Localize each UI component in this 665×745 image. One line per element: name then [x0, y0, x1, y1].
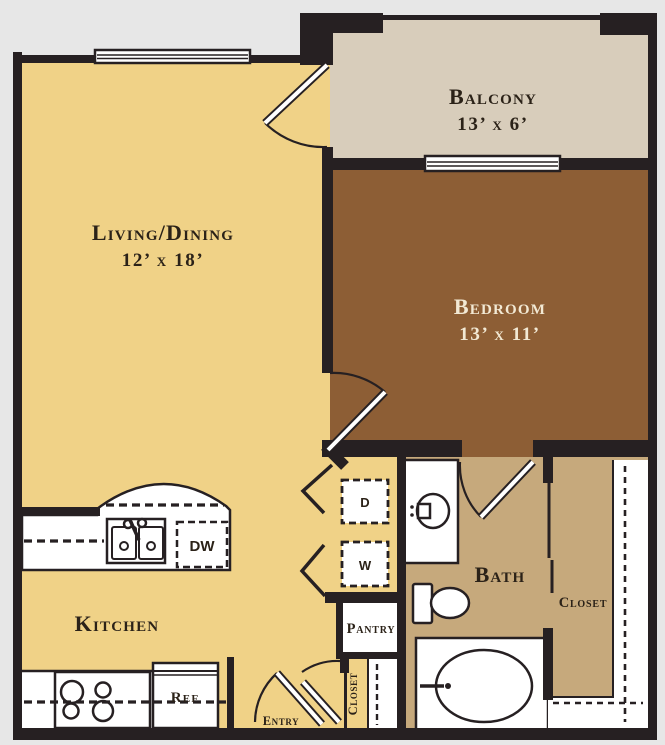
floor-plan-svg: Living/Dining 12’ x 18’ Balcony 13’ x 6’…: [0, 0, 665, 745]
entry-closet-shelf: [369, 658, 397, 728]
wall-wd-bottom: [325, 592, 406, 603]
stove: [55, 672, 150, 728]
living-window: [95, 50, 250, 63]
wall-top-right: [248, 55, 303, 63]
wall-right: [648, 13, 657, 740]
bedroom-window: [425, 156, 560, 171]
bedroom-dims: 13’ x 11’: [459, 324, 540, 345]
walk-in-closet-label: Closet: [559, 595, 608, 611]
pantry-label: Pantry: [347, 621, 396, 637]
washer-label: W: [359, 558, 372, 573]
living-room-floor: [17, 55, 333, 737]
balcony-label: Balcony: [449, 84, 537, 109]
wall-bedroom-bottom-right: [533, 440, 648, 457]
dishwasher-label: DW: [190, 538, 216, 555]
faucet-handle-right: [138, 519, 146, 527]
balcony-dims: 13’ x 6’: [457, 114, 528, 135]
living-room-dims: 12’ x 18’: [122, 250, 205, 271]
bath-vanity: [404, 460, 458, 563]
refrigerator-label: Ref: [171, 690, 200, 706]
wall-bath-closet-stub-top: [543, 457, 553, 483]
wall-counter-stub: [22, 507, 100, 516]
wall-bottom: [13, 728, 657, 740]
wall-pantry-left: [336, 603, 343, 659]
wall-bath-closet-stub-bottom: [543, 628, 553, 700]
kitchen-sink: [107, 519, 165, 563]
wall-balcony-bedroom-right: [558, 158, 648, 170]
dryer-label: D: [360, 495, 369, 510]
wall-balcony-bedroom-left: [322, 158, 427, 170]
balcony-railing: [383, 15, 600, 20]
wall-living-bedroom: [322, 147, 333, 373]
entry-label: Entry: [263, 714, 300, 728]
wall-balcony-corner: [300, 13, 333, 65]
wall-left: [13, 52, 22, 740]
bedroom-label: Bedroom: [454, 294, 546, 319]
kitchen-label: Kitchen: [75, 611, 160, 636]
bath-label: Bath: [475, 562, 526, 587]
wall-top-left: [22, 55, 97, 63]
wall-bedroom-bottom-left: [322, 440, 462, 457]
balcony-post-left: [333, 13, 383, 33]
bathtub: [416, 638, 548, 730]
balcony-post-right: [600, 13, 648, 35]
entry-closet-label: Closet: [346, 673, 360, 716]
living-room-label: Living/Dining: [92, 220, 234, 245]
wall-kitchen-stub: [227, 657, 234, 728]
floor-plan-page: Living/Dining 12’ x 18’ Balcony 13’ x 6’…: [0, 0, 665, 745]
